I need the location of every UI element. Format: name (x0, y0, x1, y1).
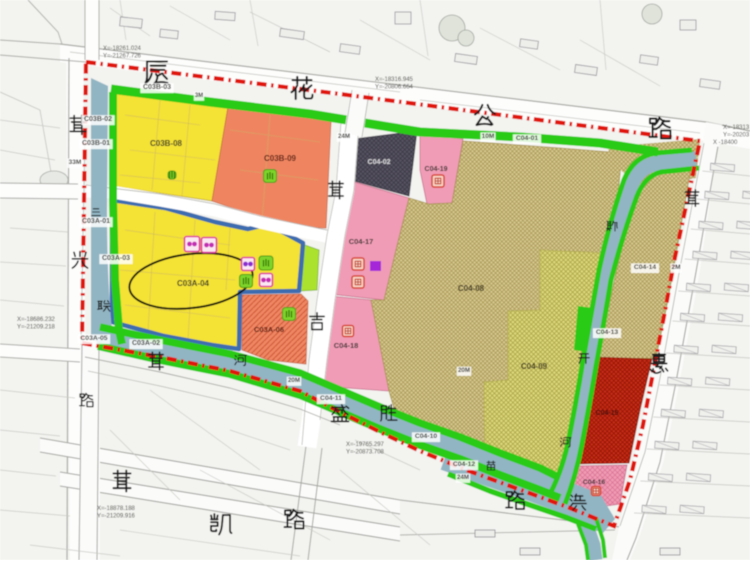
svg-text:C04-01: C04-01 (516, 135, 539, 142)
svg-text:C03A-01: C03A-01 (82, 218, 110, 225)
svg-text:X=-18261.024: X=-18261.024 (103, 46, 142, 52)
svg-text:C03B-02: C03B-02 (84, 116, 112, 123)
svg-text:C04-14: C04-14 (634, 264, 657, 271)
svg-text:C04-13: C04-13 (596, 329, 619, 336)
svg-text:Y=-21267.726: Y=-21267.726 (103, 54, 142, 60)
svg-text:C04-11: C04-11 (320, 395, 342, 402)
svg-text:3M: 3M (195, 93, 203, 99)
svg-text:C04-08: C04-08 (458, 284, 485, 293)
svg-text:24M: 24M (457, 474, 469, 481)
svg-text:20M: 20M (458, 367, 470, 374)
svg-text:C03A-05: C03A-05 (80, 335, 107, 342)
svg-text:X -18400: X -18400 (713, 140, 738, 146)
svg-text:C03A-03: C03A-03 (102, 255, 130, 262)
svg-text:10M: 10M (482, 133, 495, 140)
svg-text:C03B-08: C03B-08 (150, 139, 183, 148)
svg-text:Y=-21209.916: Y=-21209.916 (97, 514, 136, 520)
svg-text:24M: 24M (338, 133, 350, 140)
svg-text:C03A-06: C03A-06 (254, 325, 284, 334)
svg-text:X=-18316.945: X=-18316.945 (375, 77, 414, 83)
svg-text:C04-09: C04-09 (521, 362, 548, 371)
svg-text:C04-12: C04-12 (453, 461, 476, 468)
svg-text:Y=-20873.708: Y=-20873.708 (346, 450, 385, 456)
svg-text:Y=-20203: Y=-20203 (723, 133, 750, 139)
svg-text:C04-10: C04-10 (415, 433, 438, 440)
svg-text:Y=-20806.664: Y=-20806.664 (375, 85, 414, 91)
svg-text:C03A-02: C03A-02 (132, 340, 160, 347)
svg-text:2M: 2M (671, 264, 680, 271)
svg-text:X=-18686.232: X=-18686.232 (17, 317, 56, 323)
svg-text:C04-19: C04-19 (425, 166, 448, 173)
svg-text:X=-18313: X=-18313 (723, 125, 750, 131)
svg-text:X=-18878.188: X=-18878.188 (97, 506, 136, 512)
svg-text:C04-17: C04-17 (349, 237, 374, 246)
svg-text:C03B-01: C03B-01 (82, 140, 110, 147)
svg-text:C04-15: C04-15 (596, 410, 619, 417)
svg-text:C03B-03: C03B-03 (143, 84, 171, 91)
svg-text:C03A-04: C03A-04 (177, 279, 210, 288)
svg-text:33M: 33M (69, 159, 82, 166)
svg-text:20M: 20M (288, 377, 300, 384)
svg-text:C04-18: C04-18 (334, 341, 359, 350)
svg-text:X=-19765.297: X=-19765.297 (346, 442, 385, 448)
svg-text:C03B-09: C03B-09 (264, 154, 297, 163)
svg-text:C04-16: C04-16 (583, 479, 606, 486)
svg-text:Y=-21209.218: Y=-21209.218 (17, 325, 56, 331)
svg-text:C04-02: C04-02 (368, 159, 391, 166)
